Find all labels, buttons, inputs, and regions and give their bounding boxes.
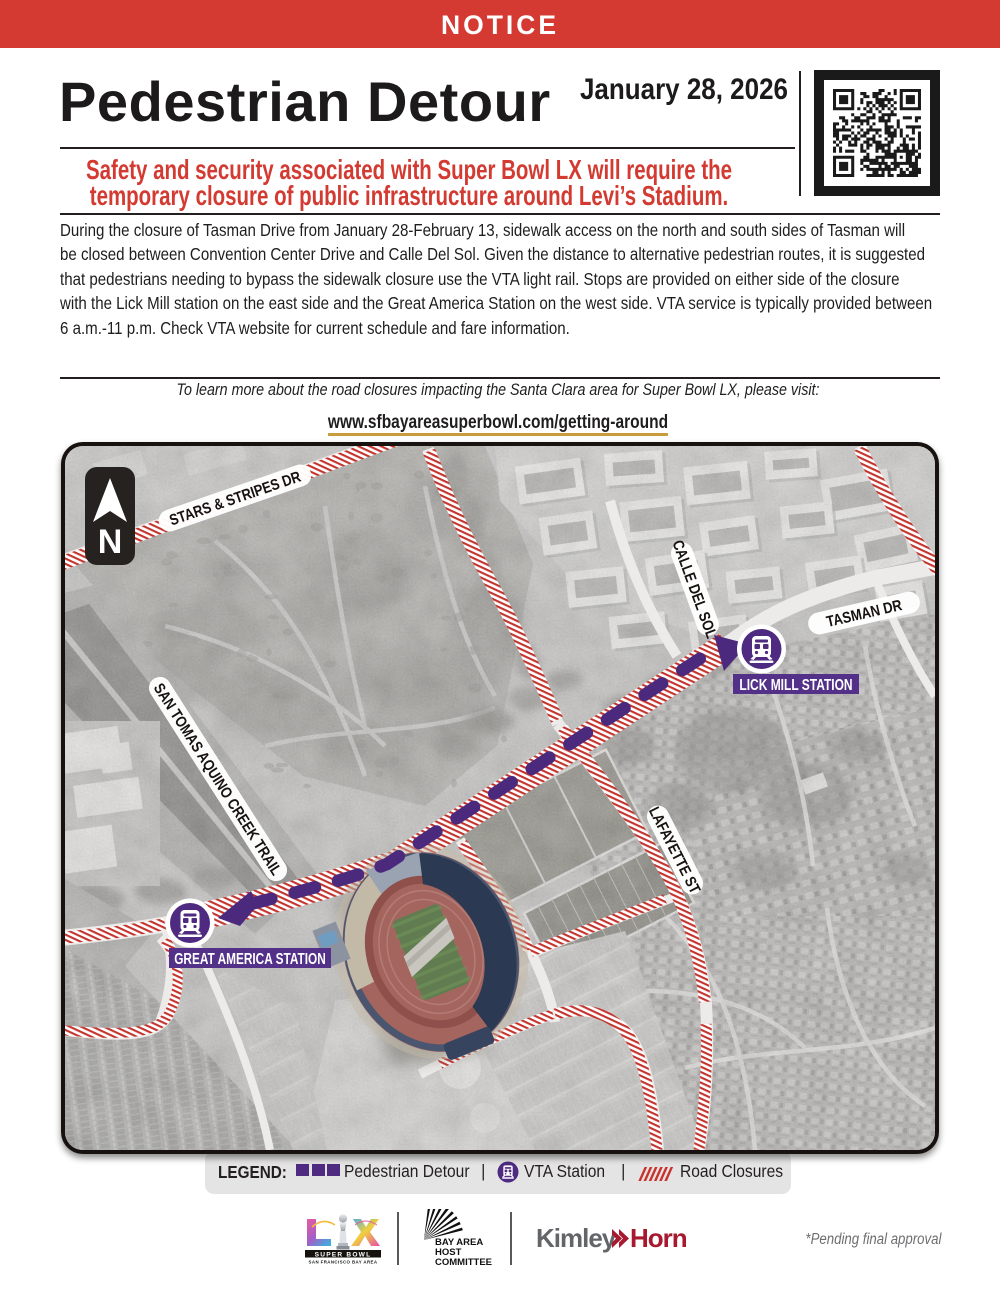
svg-text:Kimley: Kimley: [536, 1223, 617, 1253]
svg-text:LICK MILL STATION: LICK MILL STATION: [739, 675, 852, 693]
svg-text:N: N: [98, 523, 123, 561]
svg-text:COMMITTEE: COMMITTEE: [435, 1257, 492, 1268]
svg-text:SUPER BOWL: SUPER BOWL: [315, 1251, 372, 1258]
svg-text:Horn: Horn: [630, 1223, 686, 1253]
svg-text:SAN FRANCISCO BAY AREA: SAN FRANCISCO BAY AREA: [309, 1260, 378, 1265]
svg-text:GREAT AMERICA STATION: GREAT AMERICA STATION: [174, 949, 326, 967]
